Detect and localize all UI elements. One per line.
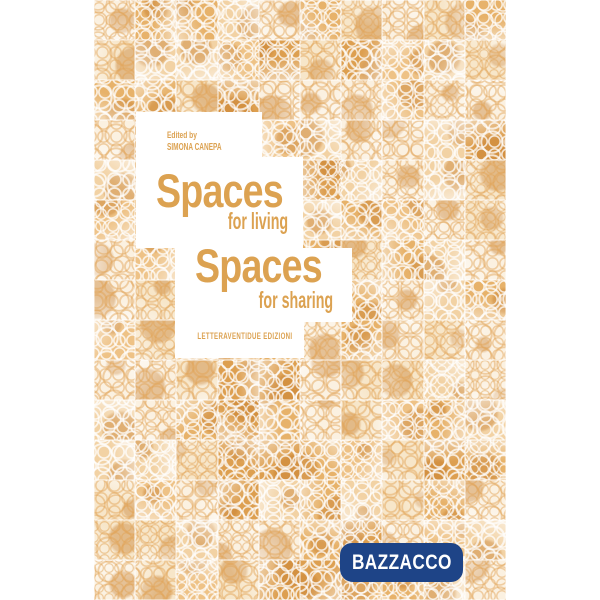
mosaic-tile [382,400,423,440]
mosaic-tile [341,400,382,440]
mosaic-tile [135,480,176,520]
mosaic-tile [300,40,341,80]
mosaic-tile [94,40,135,80]
mosaic-tile [382,440,423,480]
mosaic-tile [218,520,259,560]
mosaic-tile [465,400,506,440]
mosaic-tile [176,400,217,440]
mosaic-tile [259,520,300,560]
seller-badge-label: BAZZACCO [352,551,452,575]
mosaic-tile [135,0,176,40]
mosaic-tile [465,80,506,120]
mosaic-tile [94,400,135,440]
mosaic-tile [382,360,423,400]
mosaic-tile [259,560,300,600]
mosaic-tile [465,160,506,200]
mosaic-tile [424,360,465,400]
mosaic-tile [94,80,135,120]
mosaic-tile [300,480,341,520]
mosaic-tile [259,400,300,440]
editor-name: SIMONA CANEPA [167,142,255,153]
mosaic-tile [424,80,465,120]
mosaic-tile [94,160,135,200]
book-title-line2: Spaces [195,242,354,289]
mosaic-tile [465,240,506,280]
mosaic-tile [424,0,465,40]
mosaic-tile [176,0,217,40]
mosaic-tile [218,560,259,600]
mosaic-tile [382,120,423,160]
mosaic-tile [465,0,506,40]
mosaic-tile [300,400,341,440]
mosaic-tile [424,120,465,160]
mosaic-tile [465,40,506,80]
mosaic-tile [424,320,465,360]
publisher-name: LETTERAVENTIDUE EDIZIONI [175,332,304,341]
mosaic-tile [176,480,217,520]
mosaic-tile [176,360,217,400]
mosaic-tile [218,0,259,40]
mosaic-tile [382,0,423,40]
mosaic-tile [341,480,382,520]
mosaic-tile [424,440,465,480]
mosaic-tile [300,360,341,400]
mosaic-tile [424,400,465,440]
mosaic-tile [94,320,135,360]
mosaic-tile [465,280,506,320]
mosaic-tile [465,200,506,240]
mosaic-tile [176,40,217,80]
mosaic-tile [300,0,341,40]
mosaic-tile [382,480,423,520]
mosaic-tile [341,440,382,480]
mosaic-tile [465,480,506,520]
mosaic-tile [218,440,259,480]
book-cover: Edited by SIMONA CANEPA Spaces for livin… [94,0,506,600]
book-subtitle-line1: for living [136,210,288,233]
mosaic-tile [259,480,300,520]
mosaic-tile [135,400,176,440]
mosaic-tile [382,200,423,240]
mosaic-tile [94,240,135,280]
mosaic-tile [176,560,217,600]
mosaic-tile [94,520,135,560]
mosaic-tile [259,40,300,80]
mosaic-tile [94,480,135,520]
mosaic-tile [259,120,300,160]
mosaic-tile [382,40,423,80]
mosaic-tile [94,0,135,40]
mosaic-tile [341,0,382,40]
mosaic-tile [218,40,259,80]
mosaic-tile [135,280,176,320]
mosaic-tile [465,440,506,480]
mosaic-tile [341,200,382,240]
mosaic-tile [135,520,176,560]
mosaic-tile [341,160,382,200]
mosaic-tile [424,160,465,200]
mosaic-tile [218,360,259,400]
mosaic-tile [94,360,135,400]
mosaic-tile [465,560,506,600]
mosaic-tile [300,80,341,120]
mosaic-tile [135,560,176,600]
mosaic-tile [341,320,382,360]
mosaic-tile [135,320,176,360]
mosaic-tile [135,440,176,480]
mosaic-tile [341,120,382,160]
mosaic-tile [259,360,300,400]
mosaic-tile [341,360,382,400]
mosaic-tile [424,280,465,320]
mosaic-tile [135,40,176,80]
mosaic-tile [300,120,341,160]
mosaic-tile [135,360,176,400]
mosaic-tile [259,440,300,480]
seller-badge: BAZZACCO [340,543,463,582]
mosaic-tile [424,200,465,240]
book-subtitle-line2: for sharing [175,289,333,312]
page-background: Edited by SIMONA CANEPA Spaces for livin… [0,0,600,600]
mosaic-tile [382,320,423,360]
mosaic-tile [218,400,259,440]
mosaic-tile [382,280,423,320]
mosaic-tile [341,80,382,120]
mosaic-tile [382,240,423,280]
mosaic-tile [382,160,423,200]
mosaic-tile [465,320,506,360]
mosaic-tile [259,80,300,120]
mosaic-tile [382,80,423,120]
mosaic-tile [465,360,506,400]
book-title-line1: Spaces [156,167,315,214]
mosaic-tile [94,200,135,240]
mosaic-tile [341,40,382,80]
mosaic-tile [424,480,465,520]
mosaic-tile [300,440,341,480]
mosaic-tile [94,280,135,320]
mosaic-tile [465,520,506,560]
mosaic-tile [94,560,135,600]
edited-by-label: Edited by [167,131,210,141]
mosaic-tile [300,520,341,560]
mosaic-tile [94,440,135,480]
mosaic-tile [94,120,135,160]
mosaic-tile [300,560,341,600]
mosaic-tile [218,480,259,520]
mosaic-tile [424,40,465,80]
mosaic-tile [465,120,506,160]
mosaic-tile [176,440,217,480]
mosaic-tile [300,320,341,360]
mosaic-tile [424,240,465,280]
mosaic-tile [176,520,217,560]
mosaic-tile [259,0,300,40]
